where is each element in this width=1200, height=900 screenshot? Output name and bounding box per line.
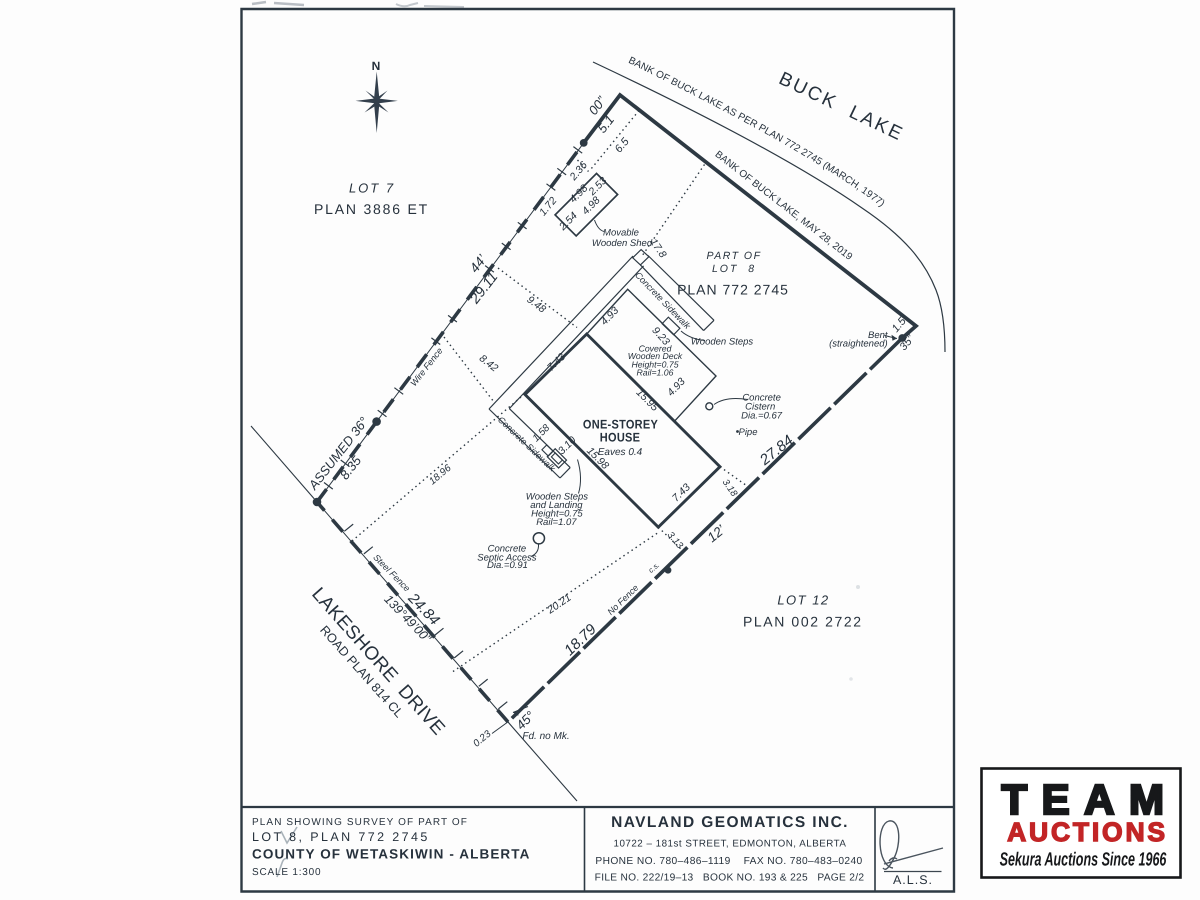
svg-text:Wooden Shed: Wooden Shed <box>592 238 653 249</box>
svg-text:A.L.S.: A.L.S. <box>893 873 933 887</box>
svg-text:HOUSE: HOUSE <box>600 431 640 445</box>
svg-text:PLAN 772 2745: PLAN 772 2745 <box>677 282 789 298</box>
svg-text:Pipe: Pipe <box>738 427 757 438</box>
svg-text:PART OF: PART OF <box>706 250 761 262</box>
svg-text:LOT 12: LOT 12 <box>777 593 829 608</box>
svg-text:PLAN 3886 ET: PLAN 3886 ET <box>314 201 429 217</box>
svg-text:COUNTY OF WETASKIWIN - ALBERTA: COUNTY OF WETASKIWIN - ALBERTA <box>252 847 530 862</box>
svg-text:Dia.=0.67: Dia.=0.67 <box>741 411 783 422</box>
svg-text:LOT 7: LOT 7 <box>349 181 395 196</box>
svg-text:TEAM: TEAM <box>1002 776 1179 823</box>
svg-text:Movable: Movable <box>603 228 639 239</box>
svg-text:Sekura Auctions Since 1966: Sekura Auctions Since 1966 <box>1000 850 1167 871</box>
svg-text:N: N <box>372 59 381 73</box>
svg-text:ONE-STOREY: ONE-STOREY <box>583 417 658 431</box>
svg-text:10722 – 181st STREET, EDMONTON: 10722 – 181st STREET, EDMONTON, ALBERTA <box>614 839 847 850</box>
svg-text:Wooden Steps: Wooden Steps <box>691 337 754 348</box>
svg-text:(straightened): (straightened) <box>829 339 888 350</box>
svg-text:FILE NO. 222/19–13 BOOK NO.: FILE NO. 222/19–13 BOOK NO. 193 & 225 PA… <box>595 873 865 884</box>
svg-text:PLAN 002 2722: PLAN 002 2722 <box>743 614 863 630</box>
svg-text:LOT 8: LOT 8 <box>712 263 756 275</box>
svg-text:Rail=1.07: Rail=1.07 <box>536 517 577 528</box>
svg-text:NAVLAND GEOMATICS INC.: NAVLAND GEOMATICS INC. <box>611 814 849 831</box>
svg-text:PHONE NO. 780–486–1119 FAX: PHONE NO. 780–486–1119 FAX NO. 780–483–0… <box>595 856 862 867</box>
svg-text:LOT 8, PLAN 772 2745: LOT 8, PLAN 772 2745 <box>252 830 430 844</box>
svg-text:Eaves 0.4: Eaves 0.4 <box>598 447 643 458</box>
svg-text:Fd. no Mk.: Fd. no Mk. <box>522 731 569 742</box>
svg-text:Rail=1.06: Rail=1.06 <box>637 367 674 377</box>
svg-text:PLAN SHOWING SURVEY OF PART OF: PLAN SHOWING SURVEY OF PART OF <box>252 817 468 828</box>
svg-text:Dia.=0.91: Dia.=0.91 <box>487 560 528 571</box>
svg-text:AUCTIONS: AUCTIONS <box>1007 817 1168 847</box>
svg-text:SCALE 1:300: SCALE 1:300 <box>252 867 321 878</box>
